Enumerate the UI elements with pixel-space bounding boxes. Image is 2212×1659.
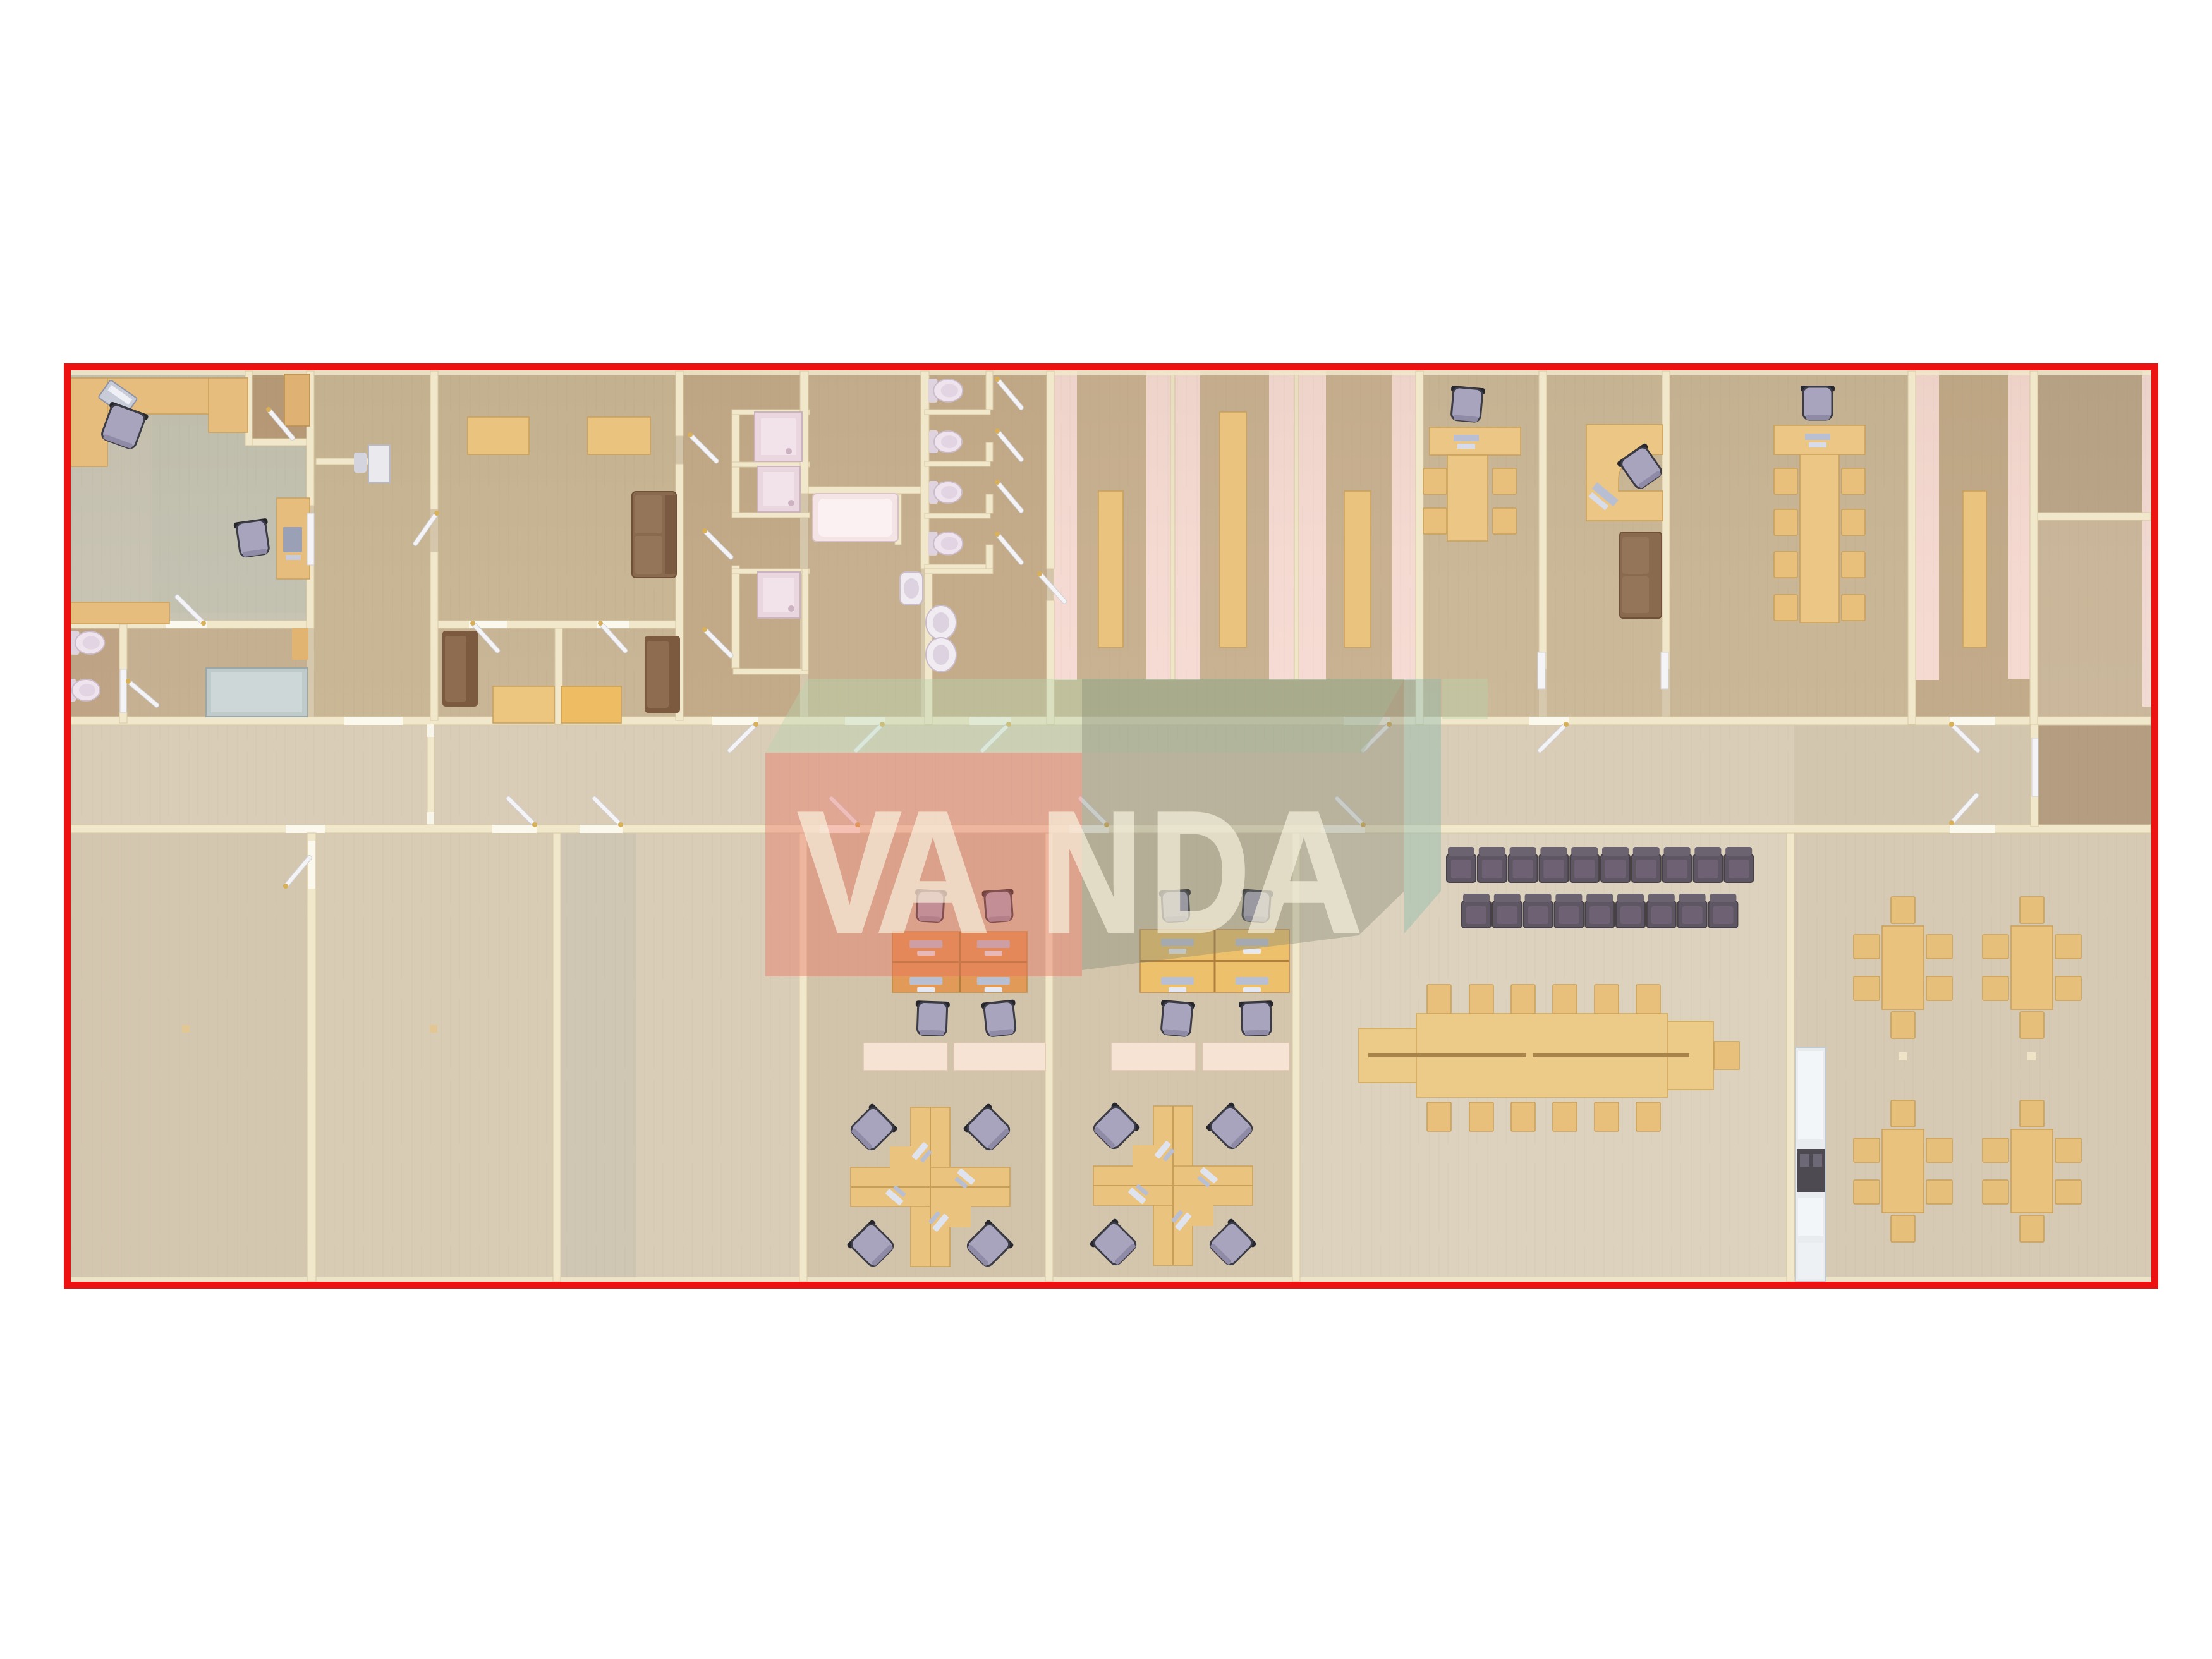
svg-text:A: A xyxy=(877,776,989,968)
svg-text:D: D xyxy=(1150,776,1249,968)
svg-text:A: A xyxy=(1246,776,1362,968)
svg-text:N: N xyxy=(1041,776,1142,968)
